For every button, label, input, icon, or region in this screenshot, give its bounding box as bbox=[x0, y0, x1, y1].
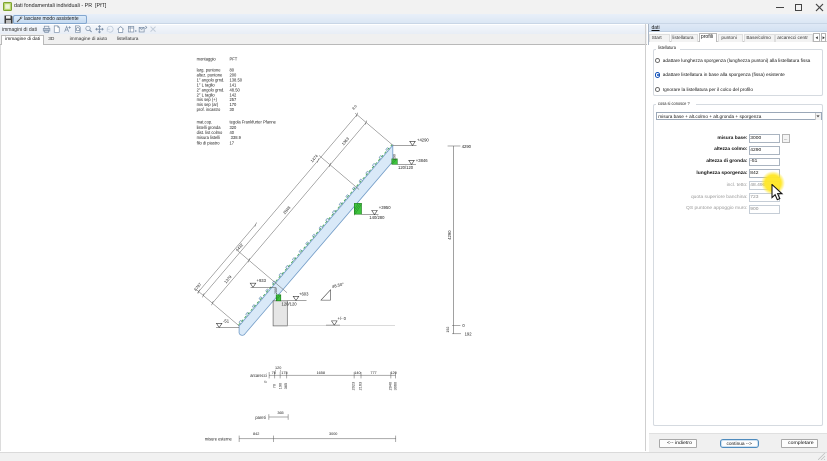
svg-text:+3846: +3846 bbox=[416, 158, 428, 163]
svg-text:842: 842 bbox=[253, 432, 259, 436]
svg-text:arcarecci: arcarecci bbox=[250, 374, 267, 379]
svg-text:120: 120 bbox=[390, 371, 396, 375]
svg-text:+933: +933 bbox=[257, 278, 267, 283]
svg-text:prof. incastro: prof. incastro bbox=[197, 107, 221, 112]
svg-text:192: 192 bbox=[446, 327, 450, 333]
svg-text:2023: 2023 bbox=[352, 382, 356, 390]
svg-text:2848: 2848 bbox=[282, 205, 292, 216]
svg-text:120/120: 120/120 bbox=[398, 165, 414, 170]
svg-text:tegola Frankfurter Pfanne: tegola Frankfurter Pfanne bbox=[230, 120, 277, 125]
svg-text:PFT: PFT bbox=[230, 57, 238, 62]
svg-text:1474: 1474 bbox=[309, 153, 319, 164]
svg-text:192: 192 bbox=[465, 332, 473, 337]
svg-text:17: 17 bbox=[230, 141, 235, 146]
svg-text:1658: 1658 bbox=[317, 371, 325, 375]
svg-text:+/- 0: +/- 0 bbox=[338, 316, 347, 321]
svg-text:4290: 4290 bbox=[447, 230, 452, 240]
svg-text:175: 175 bbox=[281, 371, 287, 375]
svg-text:3060: 3060 bbox=[393, 382, 397, 390]
svg-text:30: 30 bbox=[230, 107, 235, 112]
svg-text:misure esterne: misure esterne bbox=[205, 437, 233, 442]
svg-text:190: 190 bbox=[278, 383, 282, 389]
svg-text:montaggio: montaggio bbox=[197, 57, 217, 62]
svg-text:0: 0 bbox=[462, 324, 465, 329]
svg-text:pareti: pareti bbox=[255, 416, 265, 421]
svg-text:1379: 1379 bbox=[223, 274, 233, 285]
svg-text:filo di piastro: filo di piastro bbox=[197, 141, 221, 146]
svg-text:2940: 2940 bbox=[388, 382, 392, 390]
svg-text:1363: 1363 bbox=[340, 136, 350, 147]
svg-text:4290: 4290 bbox=[462, 144, 472, 149]
svg-text:2163: 2163 bbox=[358, 382, 362, 390]
svg-text:+3950: +3950 bbox=[379, 206, 391, 211]
svg-text:-51: -51 bbox=[223, 319, 230, 324]
svg-text:365: 365 bbox=[277, 411, 283, 415]
svg-text:6797: 6797 bbox=[193, 282, 203, 293]
svg-text:120: 120 bbox=[275, 366, 281, 370]
svg-text:140: 140 bbox=[354, 371, 360, 375]
svg-text:200: 200 bbox=[274, 288, 278, 294]
svg-text:48.50°: 48.50° bbox=[331, 282, 344, 290]
svg-text:+4290: +4290 bbox=[417, 138, 429, 143]
svg-text:140/280: 140/280 bbox=[369, 215, 385, 220]
svg-text:290: 290 bbox=[393, 154, 397, 160]
svg-text:70: 70 bbox=[273, 384, 277, 388]
svg-text:+603: +603 bbox=[299, 292, 309, 297]
svg-text:8.0: 8.0 bbox=[351, 105, 357, 111]
svg-text:365: 365 bbox=[284, 383, 288, 389]
svg-text:70: 70 bbox=[272, 371, 276, 375]
svg-text:3000: 3000 bbox=[329, 432, 337, 436]
svg-text:120/120: 120/120 bbox=[282, 302, 298, 307]
svg-text:777: 777 bbox=[370, 371, 376, 375]
svg-text:0: 0 bbox=[263, 380, 267, 384]
